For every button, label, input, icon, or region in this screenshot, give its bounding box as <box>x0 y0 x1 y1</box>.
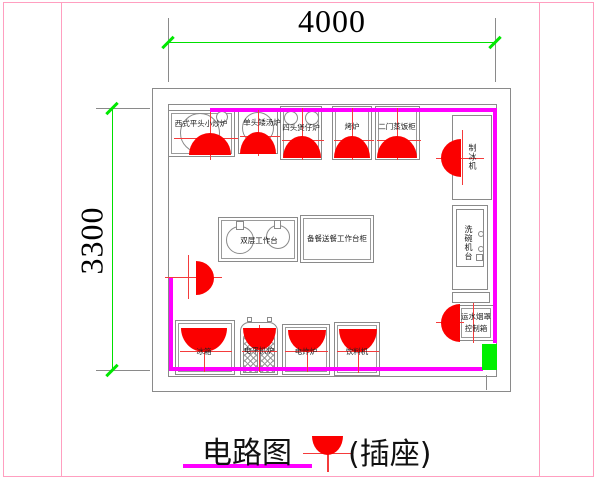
legend-title: 电路图 <box>183 428 311 472</box>
frame-right-inner-line <box>539 2 540 477</box>
legend-symbol-label: (插座) <box>348 429 431 473</box>
dimension-height-value: 3300 <box>74 179 111 303</box>
frame-left-inner-line <box>61 2 62 477</box>
door-marker <box>482 344 497 370</box>
equip-label: 电平扒炉 <box>244 347 274 355</box>
dim-line-top <box>168 42 495 43</box>
frame-bottom-line <box>3 476 594 477</box>
equip-label: 二门蒸饭柜 <box>378 123 416 131</box>
fixture-dot <box>478 246 484 252</box>
equip-label: 西式平头小炒炉 <box>175 120 228 128</box>
circuit-wall-right <box>493 108 497 343</box>
equip-label: 双层工作台 <box>240 237 278 245</box>
pot-notch <box>274 220 281 229</box>
equip-label: 单头矮汤炉 <box>243 119 281 127</box>
dimension-width-value: 4000 <box>270 3 394 40</box>
circuit-wall-bottom <box>170 367 483 371</box>
equip-label: 运水烟罩 <box>461 313 491 321</box>
dim-extension-line <box>495 18 496 82</box>
knob-square <box>247 317 252 322</box>
frame-left-outer-line <box>3 2 4 477</box>
cad-drawing-canvas: 4000 3300 西式平头小炒炉 单头矮汤炉 四头煲仔炉 烤炉 二门蒸饭柜 制… <box>0 0 600 480</box>
dim-extension-line <box>168 18 169 82</box>
outlet-line <box>188 255 189 299</box>
pot-notch <box>236 221 244 230</box>
fixture-square <box>476 254 483 261</box>
equip-label: 烤炉 <box>345 123 360 131</box>
fixture-dot <box>478 231 484 237</box>
knob-square <box>267 317 272 322</box>
equip-shelf <box>452 292 490 303</box>
equip-label: 控制箱 <box>465 325 488 333</box>
equip-label: 饮料机 <box>346 348 369 356</box>
dim-extension-line <box>96 370 150 371</box>
equip-label: 制冰机 <box>468 144 476 171</box>
equip-label: 四头煲仔炉 <box>282 124 320 132</box>
circuit-wall-top <box>210 108 496 112</box>
circuit-wall-left <box>169 278 173 371</box>
dim-extension-line <box>96 108 150 109</box>
equip-label: 电炸炉 <box>295 348 318 356</box>
equip-label: 冰箱 <box>197 348 212 356</box>
equip-label: 备餐送餐工作台柜 <box>307 235 367 243</box>
outlet-line <box>462 130 463 185</box>
equip-label: 洗碗机台 <box>464 225 472 261</box>
dim-line-left <box>112 108 113 371</box>
frame-right-outer-line <box>593 2 594 477</box>
